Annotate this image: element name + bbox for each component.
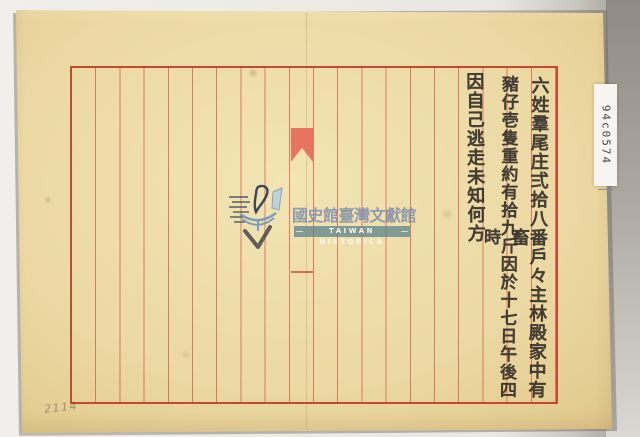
watermark-banner-en: TAIWAN HISTORICA: [294, 226, 410, 237]
archive-label-divider: [598, 189, 614, 190]
taiwan-historica-logo-icon: [228, 183, 292, 259]
archive-label-text: 94c0574: [599, 85, 612, 185]
archive-label-sticker: 94c0574: [594, 84, 617, 186]
handwriting-column-3: 因自己逃走未知何方: [452, 72, 483, 243]
document-paper: 六姓羣尾庄弍拾八番戶々主林殿家中有畜 豬仔壱隻重約有拾九斤因於十七日午後四時 因…: [0, 0, 640, 437]
taiwan-historica-watermark: 國史館臺灣文獻館 TAIWAN HISTORICA: [228, 183, 414, 259]
center-fold-fishtail-mark: [291, 128, 313, 162]
handwriting-column-2: 豬仔壱隻重約有拾九斤因於十七日午後四時: [484, 72, 516, 402]
paper-stain: [44, 196, 52, 204]
center-column-lower-mark: [291, 271, 313, 273]
scanned-document-viewport: 六姓羣尾庄弍拾八番戶々主林殿家中有畜 豬仔壱隻重約有拾九斤因於十七日午後四時 因…: [0, 0, 640, 437]
watermark-title-zh: 國史館臺灣文獻館: [292, 202, 414, 226]
handwriting-column-1: 六姓羣尾庄弍拾八番戶々主林殿家中有畜: [514, 72, 547, 402]
